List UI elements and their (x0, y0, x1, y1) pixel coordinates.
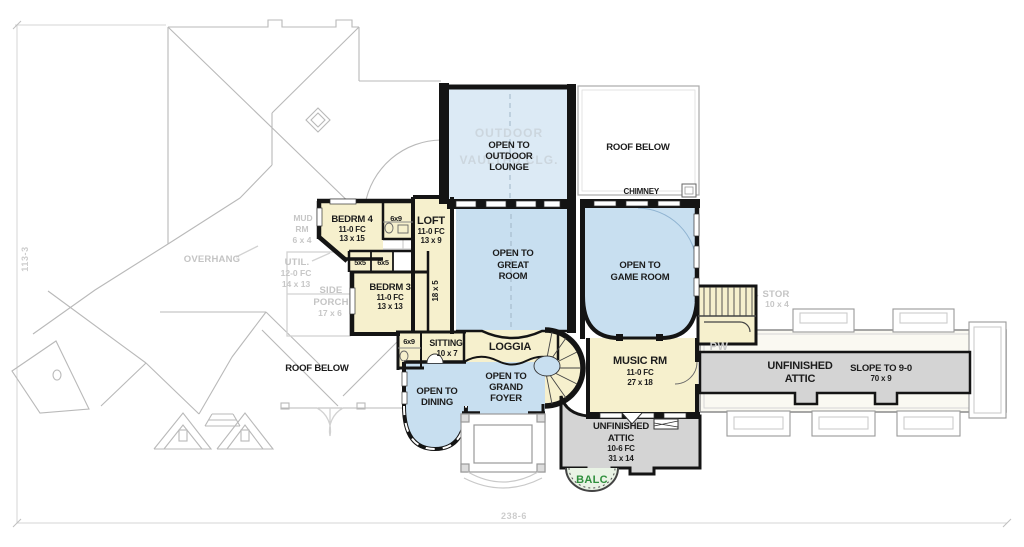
label-bath-upper: 6x9 (390, 214, 402, 223)
label-attic-center-size: 31 x 14 (608, 454, 634, 463)
chimney-box (682, 184, 696, 197)
label-great-3: ROOM (499, 271, 528, 282)
dim-width: 238-6 (501, 511, 527, 521)
label-foyer-1: OPEN TO (485, 371, 526, 382)
label-game-1: OPEN TO (619, 260, 660, 271)
label-great-2: GREAT (497, 260, 529, 271)
label-foyer-3: FOYER (490, 393, 522, 404)
label-attic-wing-1: UNFINISHED (767, 360, 832, 372)
room-music (588, 338, 698, 416)
label-lounge-1: OPEN TO (488, 140, 529, 151)
label-attic-wing-2: ATTIC (785, 373, 816, 385)
label-loggia: LOGGIA (489, 341, 531, 353)
floor-plan-drawing: OUTDOOR VAULTED CLG. OPEN TO OUTDOOR LOU… (0, 0, 1024, 547)
label-loft-size: 13 x 9 (420, 236, 442, 245)
ghost-util-3: 14 x 13 (282, 279, 311, 289)
label-attic-center-fc: 10-6 FC (607, 444, 635, 453)
label-attic-wing-slope: SLOPE TO 9-0 (850, 363, 912, 374)
ghost-mud-size: 6 x 4 (293, 235, 312, 245)
label-music-fc: 11-0 FC (626, 368, 653, 377)
label-bedrm4-size: 13 x 15 (339, 234, 365, 243)
label-game-2: GAME ROOM (611, 272, 670, 283)
ghost-porch-size: 17 x 6 (318, 308, 342, 318)
ghost-util-2: 12-0 FC (281, 268, 312, 278)
label-bedrm3-size: 13 x 13 (377, 302, 403, 311)
label-closet-5x5: 5x5 (354, 258, 366, 267)
label-sitting-size: 10 x 7 (436, 349, 458, 358)
ghost-mud-1: MUD (293, 213, 312, 223)
label-loft-fc: 11-0 FC (417, 227, 444, 236)
ghost-stor-size: 10 x 4 (765, 299, 789, 309)
label-chimney: CHIMNEY (624, 187, 660, 196)
roof-outline-bottom-left (12, 244, 404, 449)
label-attic-center-2: ATTIC (608, 433, 635, 444)
label-great-1: OPEN TO (492, 248, 533, 259)
label-roof-below-top: ROOF BELOW (606, 142, 670, 153)
label-hall-size: 18 x 5 (431, 280, 440, 302)
label-bedrm3-fc: 11-0 FC (376, 293, 403, 302)
ghost-util-1: UTIL. (285, 257, 310, 268)
label-dining-1: OPEN TO (416, 386, 457, 397)
roof-below-top (578, 86, 699, 195)
ghost-porch-2: PORCH (313, 297, 348, 308)
label-attic-wing-size: 70 x 9 (870, 374, 892, 383)
label-dining-2: DINING (421, 397, 453, 408)
room-stairs (698, 286, 756, 344)
dim-height: 113-3 (20, 246, 30, 272)
ghost-mud-2: RM (295, 224, 308, 234)
label-balc: BALC (576, 474, 608, 486)
label-lounge-3: LOUNGE (489, 162, 528, 173)
label-music: MUSIC RM (613, 355, 667, 367)
attic-hatch-icon (654, 419, 678, 429)
ghost-pw: PW (710, 341, 729, 353)
label-foyer-2: GRAND (489, 382, 523, 393)
floor-plan-page: OUTDOOR VAULTED CLG. OPEN TO OUTDOOR LOU… (0, 0, 1024, 547)
label-loft: LOFT (417, 215, 445, 227)
label-bath-lower: 6x9 (403, 337, 415, 346)
entry-porch (461, 414, 545, 488)
label-closet-6x5: 6x5 (377, 258, 389, 267)
ghost-porch-1: SIDE (320, 285, 343, 296)
label-bedrm3: BEDRM 3 (369, 282, 410, 293)
label-music-size: 27 x 18 (627, 378, 653, 387)
watermark-line1: OUTDOOR (475, 126, 543, 140)
label-roof-below-left: ROOF BELOW (285, 363, 349, 374)
label-bedrm4: BEDRM 4 (331, 214, 373, 225)
label-sitting: SITTING (429, 338, 463, 348)
label-attic-center-1: UNFINISHED (593, 421, 649, 432)
label-lounge-2: OUTDOOR (485, 151, 532, 162)
ghost-overhang: OVERHANG (184, 254, 241, 265)
label-bedrm4-fc: 11-0 FC (338, 225, 365, 234)
